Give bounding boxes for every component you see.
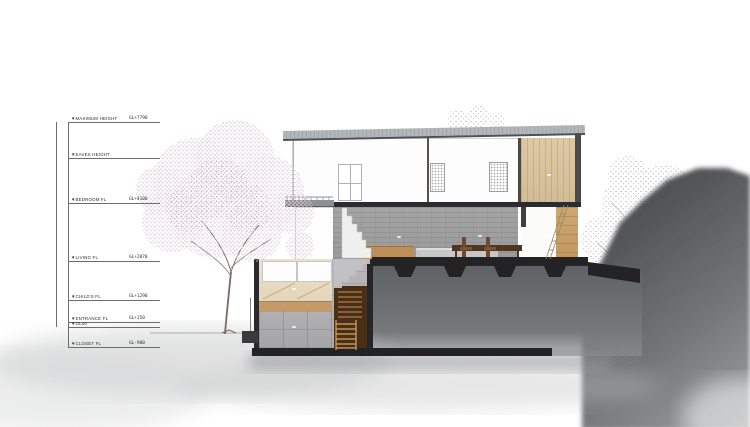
level-line xyxy=(68,203,160,204)
level-name: ▼CLOSET FL xyxy=(71,341,101,346)
level-value: GL+2070 xyxy=(129,255,148,260)
room-label xyxy=(307,177,311,179)
level-name: ▼GL±0 xyxy=(71,321,87,326)
level-name: ▼EAVES HEIGHT xyxy=(71,152,110,157)
room-label xyxy=(372,177,376,179)
section-drawing-canvas: ▼MAXIMUM HEIGHT GL+7790 ▼EAVES HEIGHT ▼B… xyxy=(0,0,750,427)
room-label xyxy=(292,288,296,290)
room-label xyxy=(292,326,296,328)
level-name: ▼LIVING FL xyxy=(71,255,98,260)
chain-dim-line xyxy=(68,122,69,347)
room-label xyxy=(547,174,551,176)
level-line xyxy=(68,347,160,348)
room-label xyxy=(478,235,482,237)
room-label xyxy=(397,236,401,238)
overall-dim-line xyxy=(56,122,57,327)
level-line xyxy=(68,261,160,262)
level-value: GL+150 xyxy=(129,316,145,321)
level-line xyxy=(68,327,160,328)
level-line xyxy=(68,158,160,159)
level-value: GL+7790 xyxy=(129,116,148,121)
level-value: GL+4100 xyxy=(129,197,148,202)
level-value: GL+1290 xyxy=(129,294,148,299)
level-name: ▼MAXIMUM HEIGHT xyxy=(71,116,117,121)
level-line xyxy=(68,122,160,123)
dimension-stack: ▼MAXIMUM HEIGHT GL+7790 ▼EAVES HEIGHT ▼B… xyxy=(0,0,200,427)
room-label xyxy=(547,235,551,237)
level-line xyxy=(68,300,160,301)
level-value: GL-900 xyxy=(129,341,145,346)
level-name: ▼CHILD'S FL xyxy=(71,294,101,299)
level-name: ▼BEDROOM FL xyxy=(71,197,107,202)
